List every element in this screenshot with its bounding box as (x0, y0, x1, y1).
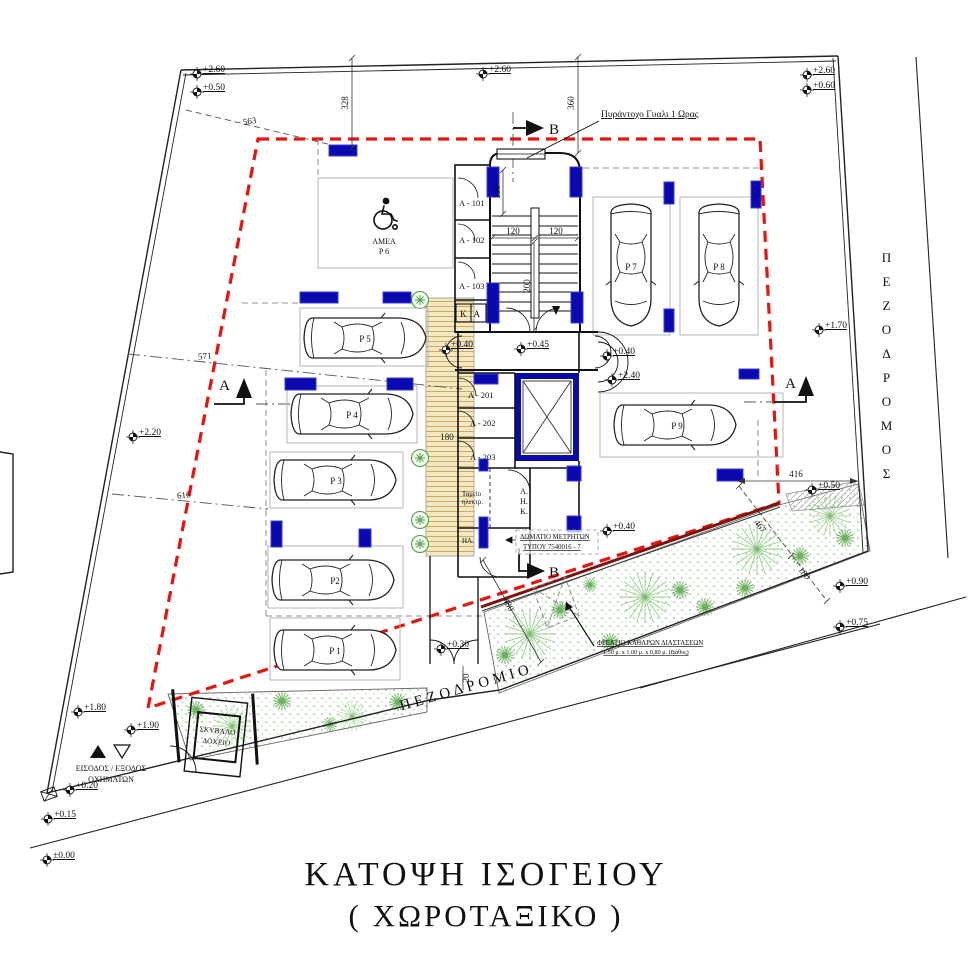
room-a203: Α - 203 (470, 452, 496, 462)
ground-floor-site-plan: P 5 P 4 P 3 P2 P 1 P 9 P 7 P 8 ΑΜΕΑ P 6 (0, 0, 972, 967)
column (664, 182, 674, 204)
level-bl3: +0.20 (76, 781, 98, 791)
column (664, 309, 674, 332)
room-ka: ΚΑ (460, 309, 487, 319)
level-tc: +2.60 (489, 65, 511, 75)
dim-416: 416 (789, 469, 803, 479)
column (717, 469, 743, 481)
manhole-label-1: ΦΡΕΑΤΙΟ ΚΑΘΑΡΩΝ ΔΙΑΣΤΑΣΕΩΝ (597, 640, 703, 647)
column (739, 369, 759, 379)
room-a102: Α - 102 (459, 235, 485, 245)
entry-triangle (90, 745, 106, 758)
level-court2: +2.40 (618, 371, 640, 381)
level-tr2: +0.60 (813, 81, 835, 91)
label-p9: P 9 (671, 421, 683, 431)
room-ahk-h: Η. (520, 497, 528, 506)
dim-328: 328 (340, 96, 350, 110)
corner-monument (41, 787, 58, 801)
meter-room-label-2: ΤΥΠΟΥ 7540016 - 7 (523, 544, 581, 551)
room-ahk-k: Κ. (520, 507, 528, 516)
column (285, 378, 316, 390)
column (567, 466, 581, 481)
section-a-left: A (214, 378, 252, 404)
floor-plan-canvas: P 5 P 4 P 3 P2 P 1 P 9 P 7 P 8 ΑΜΕΑ P 6 (0, 0, 972, 967)
section-b-top: B (513, 120, 559, 138)
level-tl1: +2.60 (203, 65, 225, 75)
elec-board-1: Ταμείο (462, 491, 482, 498)
neighbor-structure (0, 452, 13, 574)
column (570, 167, 582, 197)
label-p5: P 5 (359, 334, 371, 344)
manhole-label-2: 1,50 μ. x 1.00 μ. x 0,80 μ. (Βάθος) (603, 649, 689, 656)
dim-180-walkway: 180 (440, 432, 454, 442)
room-a201: Α - 201 (468, 390, 494, 400)
wheelchair-icon (374, 198, 397, 230)
exit-triangle (114, 745, 130, 758)
label-p7: P 7 (625, 262, 637, 272)
column (571, 292, 583, 323)
level-court1: +0.40 (613, 347, 635, 357)
column (300, 292, 338, 303)
level-walkway: +0.40 (451, 340, 473, 350)
dim-120b: 120 (549, 226, 563, 236)
column (474, 374, 498, 384)
section-label-b-top: B (549, 122, 559, 138)
drawing-title-line1: ΚΑΤΟΨΗ ΙΣΟΓΕΙΟΥ (0, 854, 972, 897)
level-court3: +0.40 (613, 522, 635, 532)
room-a103: Α - 103 (459, 281, 485, 291)
column (387, 378, 413, 390)
stair-direction-arrow (552, 306, 560, 315)
section-label-a-left: A (219, 378, 230, 394)
dim-120a: 120 (506, 226, 520, 236)
fireglass-label: Πυράντοχο Γυαλι 1 Ωρας (601, 110, 699, 120)
level-se2: +0.90 (846, 577, 868, 587)
level-lobby: +0.45 (527, 340, 549, 350)
label-amea: ΑΜΕΑ (372, 237, 396, 246)
street-name-pedestrian-right: ΠΕΖΟΔΡΟΜΟΣ (878, 250, 894, 500)
label-p4: P 4 (346, 410, 358, 420)
level-se: +0.50 (818, 481, 840, 491)
level-tr1: +2.60 (813, 66, 835, 76)
column (383, 292, 411, 303)
column (751, 181, 761, 208)
level-left: +2.20 (139, 428, 161, 438)
access-label-1: ΕΙΣΟΔΟΣ / ΕΞΟΔΟΣ (76, 764, 147, 773)
dim-563: 563 (242, 115, 257, 127)
room-a101: Α - 101 (459, 198, 485, 208)
column (359, 529, 371, 547)
level-bl4: +0.15 (54, 810, 76, 820)
level-right: +1.70 (825, 321, 847, 331)
room-a202: Α - 202 (470, 418, 496, 428)
section-a-right: A (774, 376, 814, 402)
label-p8: P 8 (713, 262, 725, 272)
column (271, 521, 282, 547)
room-hl: ΗΛ. (462, 537, 474, 545)
level-se3: +0.75 (846, 618, 868, 628)
vehicle-access: ΕΙΣΟΔΟΣ / ΕΞΟΔΟΣ ΟΧΗΜΑΤΩΝ (76, 745, 147, 784)
level-bl2: +1.90 (137, 721, 159, 731)
label-p2: P2 (330, 576, 340, 586)
level-tl2: +0.50 (203, 83, 225, 93)
label-amea-p6: P 6 (379, 247, 389, 256)
section-label-a-right: A (785, 376, 796, 392)
dim-616: 616 (177, 489, 192, 500)
meter-room-note: ΔΩΜΑΤΙΟ ΜΕΤΡΗΤΩΝ ΤΥΠΟΥ 7540016 - 7 (506, 530, 598, 554)
room-ahk-a: Α. (520, 487, 528, 496)
drawing-title-line2: ( ΧΩΡΟΤΑΞΙΚΟ ) (0, 897, 972, 936)
elevator (518, 376, 576, 458)
dim-150: 150 (492, 185, 502, 199)
dim-571: 571 (198, 350, 212, 361)
column (479, 517, 488, 548)
level-bl1: +1.80 (84, 703, 106, 713)
label-p3: P 3 (330, 476, 342, 486)
section-label-b-bottom: B (549, 565, 559, 581)
dim-360: 360 (566, 96, 576, 110)
meter-room-label-1: ΔΩΜΑΤΙΟ ΜΕΤΡΗΤΩΝ (520, 534, 590, 541)
label-p1: P 1 (329, 646, 340, 656)
drawing-title: ΚΑΤΟΨΗ ΙΣΟΓΕΙΟΥ ( ΧΩΡΟΤΑΞΙΚΟ ) (0, 854, 972, 935)
level-gate: +0.30 (447, 640, 469, 650)
dim-200: 200 (522, 279, 532, 293)
column (487, 283, 499, 323)
elec-board-2: ηλεκτρ. (462, 499, 483, 506)
section-markers: B B A A (214, 120, 814, 581)
building (164, 149, 628, 778)
